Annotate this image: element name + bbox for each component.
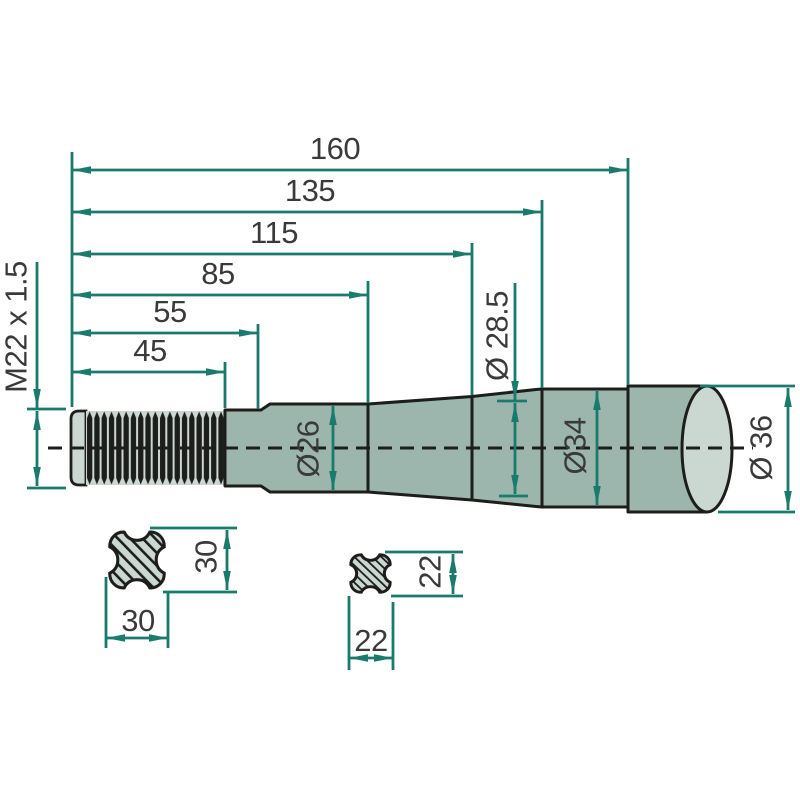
dim-label-160: 160 (310, 131, 360, 166)
dim-label-135: 135 (285, 173, 335, 208)
shaft-side-view (48, 386, 753, 512)
cross-section-30-profile (110, 532, 164, 588)
dia-label-26: Ø26 (291, 420, 326, 477)
cs30-width-label: 30 (121, 603, 155, 638)
dim-label-45: 45 (133, 333, 166, 368)
dim-label-55: 55 (153, 294, 186, 329)
dia-label-34: Ø34 (558, 417, 593, 474)
length-dimensions: 160 135 115 85 55 45 (72, 131, 628, 409)
dim-label-85: 85 (201, 256, 234, 291)
cross-section-22: 22 22 (349, 552, 463, 670)
thread-dimension: M22 x 1.5 (0, 261, 66, 488)
cs22-width-label: 22 (354, 623, 387, 658)
cross-section-22-profile (351, 555, 390, 592)
drawing-canvas: 160 135 115 85 55 45 M22 x 1.5 Ø 28.5 Ø2… (0, 0, 800, 800)
dia-label-36: Ø 36 (744, 415, 779, 480)
cs22-height-label: 22 (413, 555, 448, 588)
dia-label-28-5: Ø 28.5 (480, 291, 515, 381)
thread-label: M22 x 1.5 (0, 261, 34, 393)
technical-drawing: 160 135 115 85 55 45 M22 x 1.5 Ø 28.5 Ø2… (0, 0, 800, 800)
cross-section-30: 30 30 (106, 528, 237, 648)
dim-label-115: 115 (250, 215, 298, 250)
cs30-height-label: 30 (189, 540, 224, 574)
